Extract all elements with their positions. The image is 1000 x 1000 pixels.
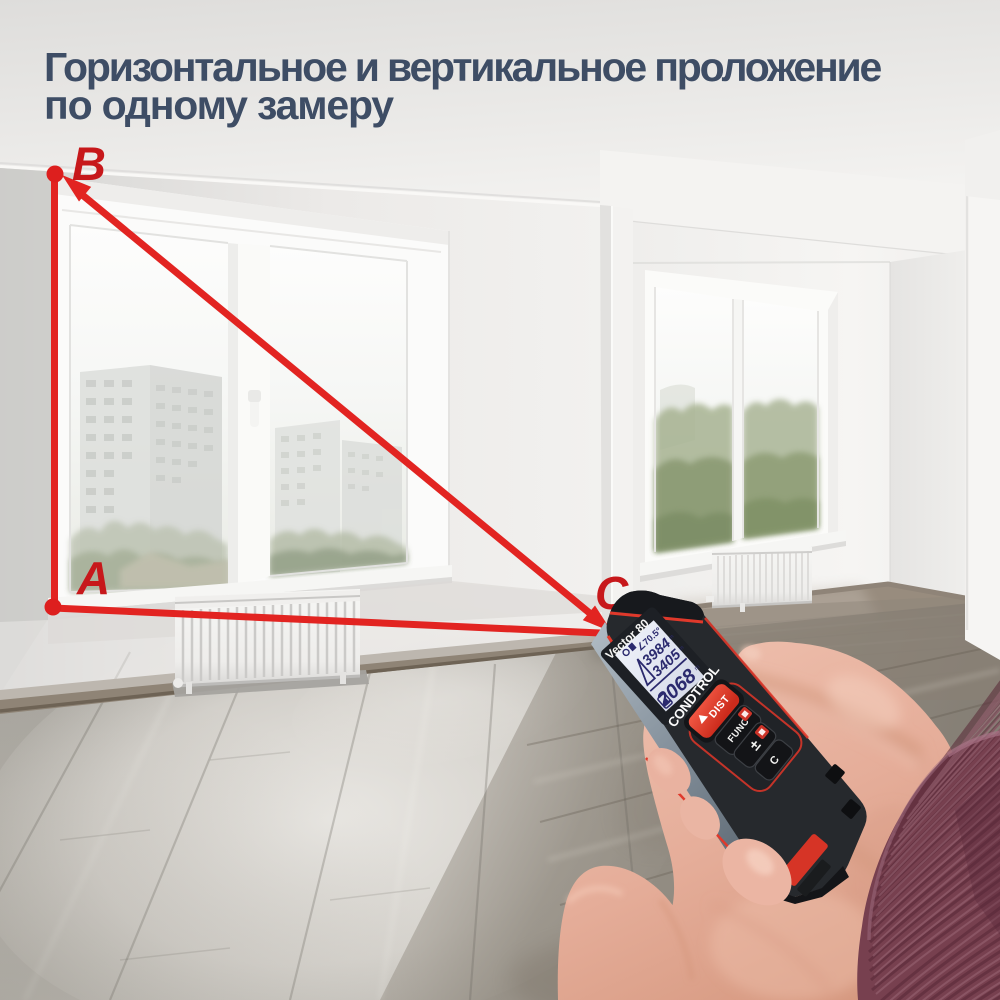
svg-text:по одному замеру: по одному замеру: [44, 82, 394, 128]
svg-text:B: B: [72, 137, 106, 190]
svg-text:A: A: [76, 552, 110, 604]
